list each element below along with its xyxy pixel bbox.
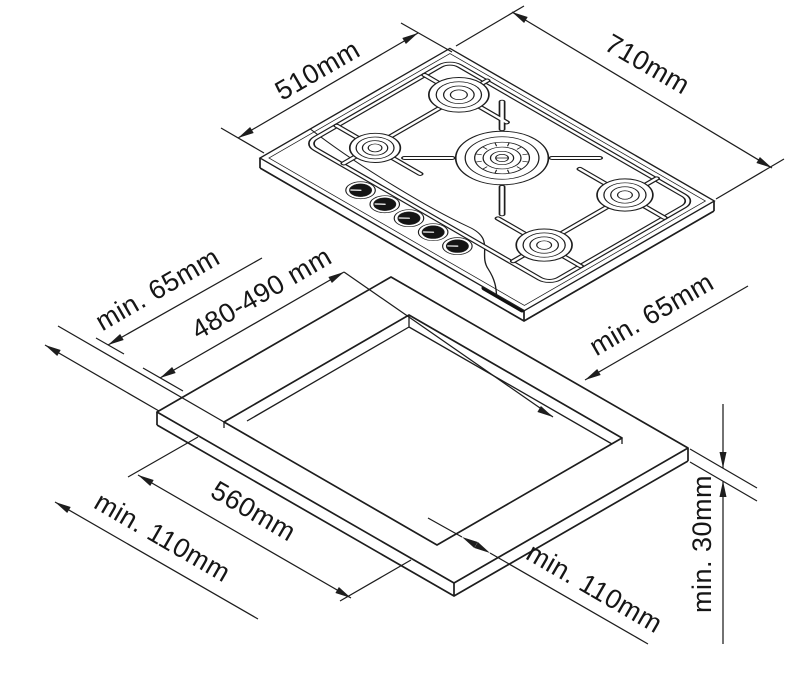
dim-label-side-clearance-right: min. 110mm — [521, 537, 667, 639]
dim-label-hob-width: 710mm — [600, 28, 695, 100]
technical-drawing-svg: 510mm 710mm min. 65mm 480-490 mm min. 65… — [0, 0, 790, 694]
dimension-worktop-thickness: min. 30mm — [687, 404, 757, 644]
hob-isometric-drawing — [260, 48, 714, 321]
installation-diagram: 510mm 710mm min. 65mm 480-490 mm min. 65… — [0, 0, 790, 694]
dim-label-worktop-thickness: min. 30mm — [687, 475, 717, 613]
dim-label-hob-depth: 510mm — [270, 34, 365, 106]
dimension-rear-clearance-right: min. 65mm — [584, 267, 748, 380]
